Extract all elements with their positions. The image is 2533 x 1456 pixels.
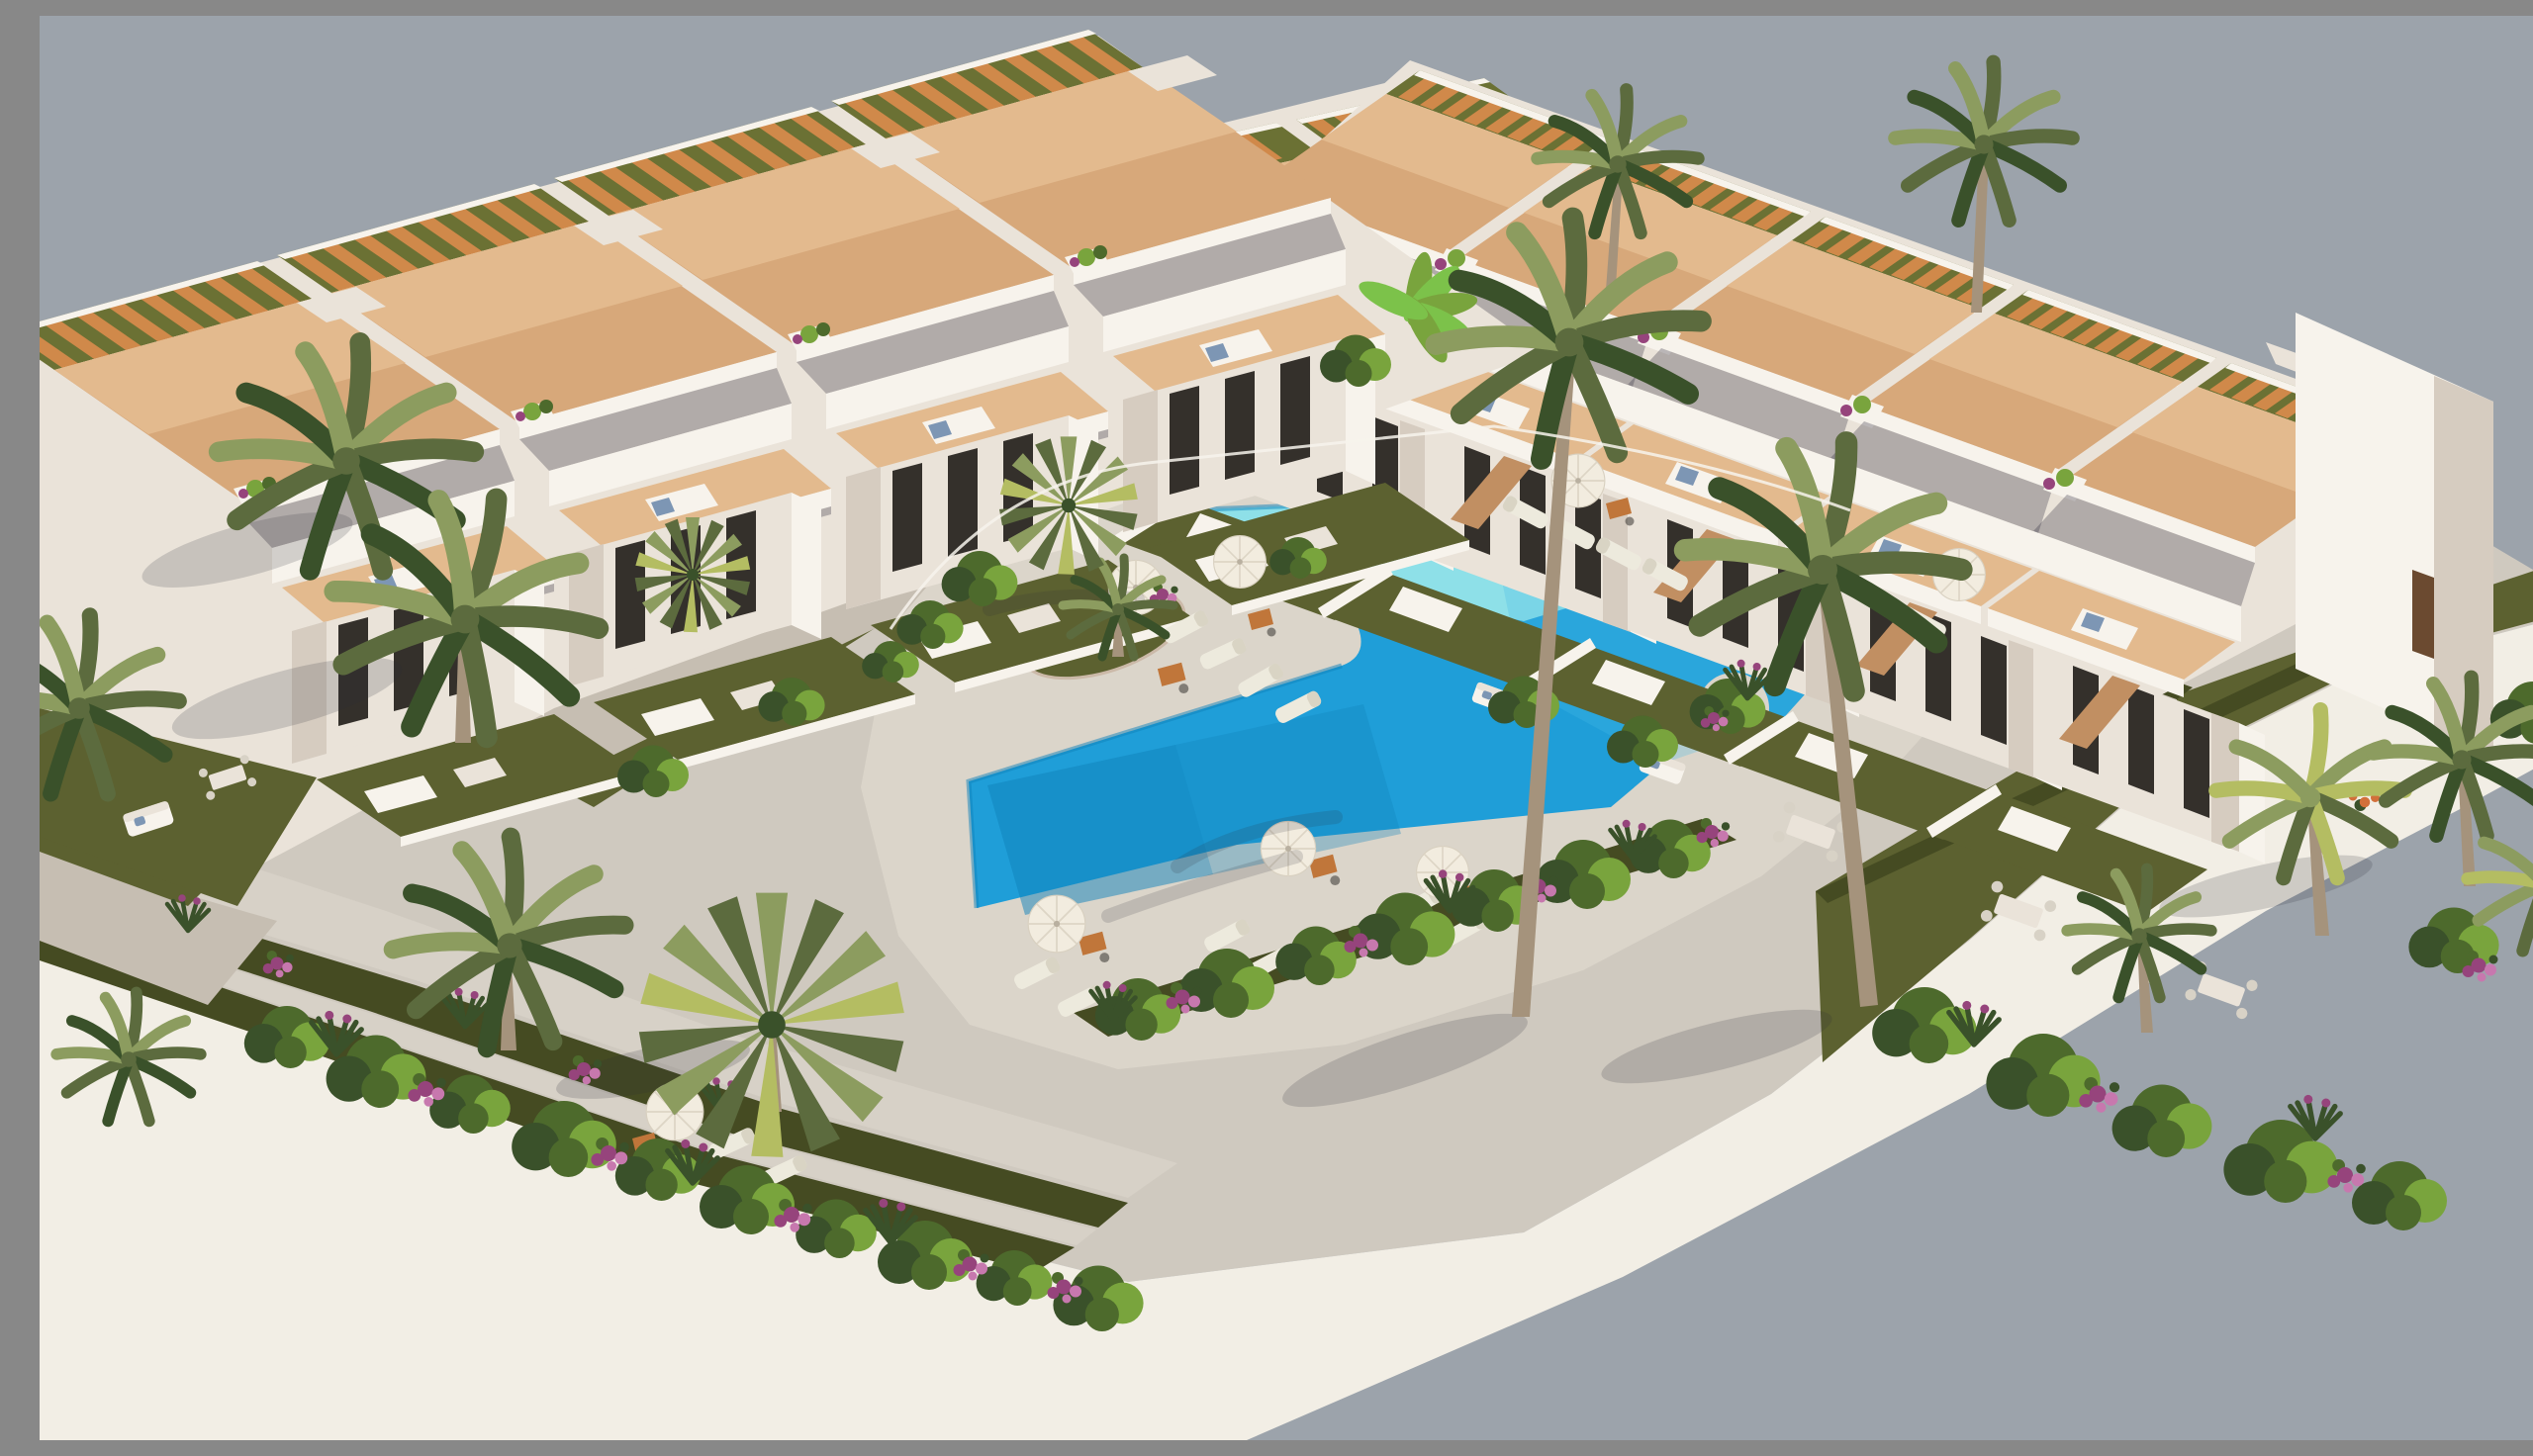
architectural-render <box>40 16 2533 1440</box>
render-canvas: Aerial 3D architectural rendering of a m… <box>40 16 2533 1440</box>
parasol <box>1028 895 1085 953</box>
parasol <box>1214 536 1266 589</box>
